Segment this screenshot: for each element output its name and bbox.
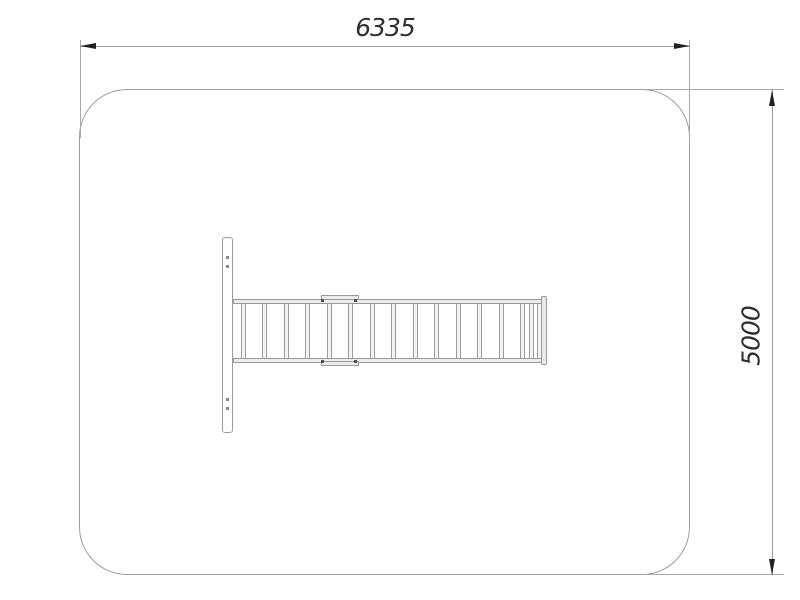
ladder-rung — [499, 304, 504, 358]
width-extension-line-left — [80, 40, 81, 138]
height-dimension-label: 5000 — [739, 306, 764, 366]
ladder-rung — [456, 304, 461, 358]
height-extension-line-top — [644, 89, 784, 90]
ladder-rung — [327, 304, 332, 358]
dimension-arrowhead-down-icon — [769, 559, 775, 575]
dimension-arrowhead-right-icon — [674, 43, 690, 49]
dimension-arrowhead-up-icon — [769, 90, 775, 106]
joint-bolt — [354, 299, 357, 302]
width-dimension-label: 6335 — [355, 15, 415, 40]
ladder-end-post — [541, 296, 547, 365]
height-dimension-line — [772, 90, 773, 575]
safety-zone-outline — [79, 89, 690, 575]
joint-bolt — [354, 360, 357, 363]
ladder-rung — [262, 304, 267, 358]
ladder-rung — [520, 304, 525, 358]
ladder-rung — [284, 304, 289, 358]
panel-hole — [226, 265, 229, 268]
joint-bolt — [321, 299, 324, 302]
dimension-arrowhead-left-icon — [80, 43, 96, 49]
width-dimension-line — [80, 46, 690, 47]
panel-hole — [226, 398, 229, 401]
panel-hole — [226, 407, 229, 410]
ladder-rung — [348, 304, 353, 358]
ladder-rung — [477, 304, 482, 358]
ladder-rung — [241, 304, 246, 358]
ladder-rung — [529, 304, 534, 358]
ladder-rung — [434, 304, 439, 358]
joint-bolt — [321, 360, 324, 363]
ladder-rung — [370, 304, 375, 358]
ladder-rung — [305, 304, 310, 358]
height-extension-line-bottom — [644, 574, 784, 575]
panel-hole — [226, 256, 229, 259]
ladder-rail-bottom — [233, 358, 547, 363]
ladder-rung — [391, 304, 396, 358]
ladder-rung — [413, 304, 418, 358]
technical-drawing-plan-view: 6335 5000 — [0, 0, 800, 600]
